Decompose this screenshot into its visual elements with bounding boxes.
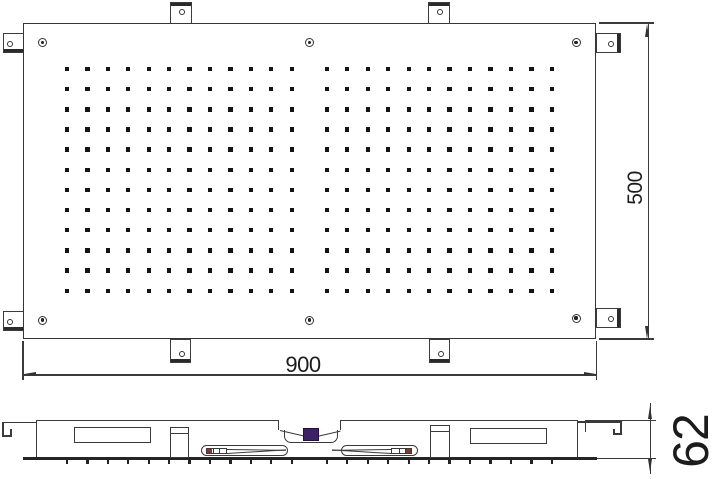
nozzle	[509, 289, 513, 293]
mounting-tab-right	[596, 33, 621, 53]
nozzle	[65, 188, 69, 192]
nozzle	[386, 289, 390, 293]
nozzle	[290, 268, 294, 272]
nozzle	[550, 289, 554, 293]
nozzle	[147, 188, 151, 192]
nozzle-tick	[86, 459, 88, 463]
notch-left-wall	[278, 420, 279, 430]
nozzle	[167, 147, 171, 151]
nozzle	[290, 127, 294, 131]
nozzle	[468, 248, 472, 252]
nozzle	[208, 208, 212, 212]
dimension-label-depth: 62	[674, 410, 708, 472]
nozzle	[447, 147, 451, 151]
nozzle	[468, 188, 472, 192]
nozzle	[488, 127, 492, 131]
nozzle	[249, 208, 253, 212]
nozzle	[345, 67, 349, 71]
nozzle	[187, 248, 191, 252]
nozzle	[228, 127, 232, 131]
nozzle-tick	[448, 459, 450, 463]
nozzle	[85, 147, 89, 151]
arrowhead-right-icon	[584, 372, 596, 376]
nozzle	[85, 248, 89, 252]
nozzle	[106, 188, 110, 192]
screw-hole-icon	[305, 316, 314, 325]
nozzle	[269, 127, 273, 131]
nozzle	[366, 208, 370, 212]
nozzle	[126, 168, 130, 172]
tab-hole-icon	[438, 351, 444, 357]
mounting-tab-right	[596, 308, 621, 328]
nozzle	[529, 289, 533, 293]
nozzle	[407, 289, 411, 293]
nozzle	[407, 127, 411, 131]
nozzle	[447, 67, 451, 71]
left-divider-block	[170, 427, 189, 459]
nozzle	[529, 228, 533, 232]
nozzle	[167, 248, 171, 252]
screw-hole-icon	[572, 38, 581, 47]
nozzle	[447, 107, 451, 111]
nozzle-tick	[127, 459, 129, 463]
nozzle	[325, 107, 329, 111]
nozzle	[427, 67, 431, 71]
nozzle	[106, 168, 110, 172]
nozzle	[345, 228, 349, 232]
nozzle	[290, 188, 294, 192]
nozzle	[407, 87, 411, 91]
nozzle	[269, 248, 273, 252]
nozzle	[290, 67, 294, 71]
nozzle	[345, 248, 349, 252]
nozzle	[147, 127, 151, 131]
nozzle	[126, 208, 130, 212]
nozzle	[269, 87, 273, 91]
nozzle	[126, 127, 130, 131]
nozzle	[325, 147, 329, 151]
nozzle	[468, 87, 472, 91]
nozzle	[85, 188, 89, 192]
nozzle	[325, 228, 329, 232]
nozzle-tick	[107, 459, 109, 463]
nozzle	[187, 188, 191, 192]
nozzle	[167, 268, 171, 272]
nozzle-tick	[551, 459, 553, 463]
nozzle-tick	[408, 459, 410, 463]
nozzle	[147, 248, 151, 252]
dimension-label-width: 900	[273, 352, 333, 378]
nozzle	[550, 147, 554, 151]
nozzle	[106, 107, 110, 111]
nozzle	[208, 168, 212, 172]
nozzle	[468, 289, 472, 293]
left-clip-line	[219, 448, 220, 454]
tab-shadow-edge	[4, 327, 23, 330]
tab-shadow-edge	[171, 3, 191, 6]
tab-shadow-edge	[4, 49, 23, 52]
nozzle	[106, 67, 110, 71]
nozzle	[366, 228, 370, 232]
nozzle	[488, 67, 492, 71]
nozzle	[290, 248, 294, 252]
nozzle	[85, 87, 89, 91]
nozzle	[85, 107, 89, 111]
nozzle	[147, 268, 151, 272]
nozzle	[65, 248, 69, 252]
right-bracket-curl	[613, 429, 615, 435]
nozzle	[290, 289, 294, 293]
nozzle	[106, 147, 110, 151]
nozzle-tick	[387, 459, 389, 463]
body-top-edge-right	[341, 420, 578, 421]
nozzle	[147, 289, 151, 293]
nozzle	[187, 228, 191, 232]
body-top-edge-left	[36, 420, 278, 421]
nozzle	[386, 228, 390, 232]
left-bracket-curl	[10, 429, 12, 437]
mounting-tab-left	[3, 311, 24, 331]
nozzle	[65, 228, 69, 232]
nozzle	[529, 87, 533, 91]
nozzle	[407, 188, 411, 192]
nozzle	[65, 208, 69, 212]
nozzle	[509, 87, 513, 91]
nozzle	[208, 228, 212, 232]
nozzle	[167, 67, 171, 71]
technical-drawing-canvas: 900 500	[0, 0, 726, 479]
nozzle	[249, 127, 253, 131]
arrowhead-up-icon	[645, 24, 649, 37]
nozzle	[366, 67, 370, 71]
nozzle-tick	[510, 459, 512, 463]
right-divider-block	[430, 425, 450, 458]
tab-hole-icon	[179, 9, 185, 15]
nozzle	[249, 228, 253, 232]
nozzle	[550, 268, 554, 272]
nozzle	[249, 87, 253, 91]
nozzle	[529, 188, 533, 192]
nozzle	[550, 67, 554, 71]
tab-hole-icon	[7, 41, 13, 47]
nozzle	[488, 268, 492, 272]
nozzle-tick	[291, 459, 293, 463]
arrowhead-down-icon	[645, 326, 649, 339]
nozzle	[290, 147, 294, 151]
nozzle	[290, 107, 294, 111]
nozzle	[468, 147, 472, 151]
nozzle	[447, 127, 451, 131]
nozzle	[106, 228, 110, 232]
nozzle-tick	[469, 459, 471, 463]
nozzle	[325, 127, 329, 131]
screw-hole-icon	[572, 314, 581, 323]
nozzle	[325, 248, 329, 252]
nozzle	[447, 87, 451, 91]
nozzle	[345, 87, 349, 91]
nozzle	[147, 87, 151, 91]
nozzle	[407, 147, 411, 151]
mounting-tab-bottom	[170, 339, 191, 363]
nozzle	[208, 107, 212, 111]
nozzle	[65, 147, 69, 151]
nozzle	[126, 147, 130, 151]
nozzle	[468, 168, 472, 172]
nozzle	[345, 208, 349, 212]
nozzle-tick	[530, 459, 532, 463]
nozzle	[550, 188, 554, 192]
nozzle	[529, 208, 533, 212]
nozzle	[228, 208, 232, 212]
nozzle	[167, 87, 171, 91]
nozzle	[386, 248, 390, 252]
nozzle	[550, 127, 554, 131]
nozzle	[269, 168, 273, 172]
nozzle	[366, 188, 370, 192]
nozzle	[366, 168, 370, 172]
right-divider-cap-line	[430, 431, 450, 432]
nozzle	[407, 67, 411, 71]
nozzle	[126, 107, 130, 111]
nozzle	[488, 289, 492, 293]
nozzle	[106, 127, 110, 131]
nozzle	[208, 268, 212, 272]
nozzle	[509, 127, 513, 131]
nozzle	[167, 188, 171, 192]
nozzle-tick	[168, 459, 170, 463]
nozzle	[228, 228, 232, 232]
nozzle	[386, 188, 390, 192]
nozzle	[529, 67, 533, 71]
nozzle	[147, 168, 151, 172]
nozzle-tick	[229, 459, 231, 463]
nozzle	[249, 168, 253, 172]
nozzle	[366, 268, 370, 272]
nozzle	[269, 268, 273, 272]
nozzle	[509, 168, 513, 172]
nozzle	[269, 188, 273, 192]
nozzle	[126, 67, 130, 71]
nozzle-tick	[326, 459, 328, 463]
nozzle	[187, 127, 191, 131]
nozzle	[529, 268, 533, 272]
notch-right-wall	[340, 420, 341, 430]
nozzle-tick	[209, 459, 211, 463]
mounting-tab-left	[3, 33, 24, 53]
nozzle	[85, 268, 89, 272]
nozzle	[550, 107, 554, 111]
nozzle	[208, 67, 212, 71]
left-clip-accent	[207, 449, 212, 453]
arrowhead-down-icon	[648, 459, 652, 472]
nozzle	[488, 107, 492, 111]
nozzle	[106, 248, 110, 252]
right-internal-chamber	[470, 428, 547, 444]
nozzle	[447, 268, 451, 272]
nozzle	[529, 147, 533, 151]
nozzle	[407, 268, 411, 272]
nozzle-tick	[489, 459, 491, 463]
left-clip-line	[213, 448, 214, 454]
nozzle	[407, 228, 411, 232]
nozzle	[550, 248, 554, 252]
nozzle	[167, 289, 171, 293]
nozzle	[427, 289, 431, 293]
nozzle	[468, 127, 472, 131]
nozzle	[106, 87, 110, 91]
nozzle	[345, 168, 349, 172]
nozzle	[529, 248, 533, 252]
nozzle	[529, 107, 533, 111]
nozzle	[249, 107, 253, 111]
nozzle	[65, 127, 69, 131]
nozzle	[65, 107, 69, 111]
nozzle	[187, 67, 191, 71]
tab-hole-icon	[7, 319, 13, 325]
nozzle	[386, 147, 390, 151]
screw-hole-icon	[38, 316, 47, 325]
extension-line	[599, 338, 654, 339]
nozzle	[366, 147, 370, 151]
nozzle	[325, 289, 329, 293]
nozzle	[126, 248, 130, 252]
nozzle	[488, 87, 492, 91]
nozzle	[187, 147, 191, 151]
nozzle	[208, 188, 212, 192]
nozzle	[228, 147, 232, 151]
tab-hole-icon	[608, 316, 614, 322]
left-bracket-top	[2, 422, 36, 424]
water-inlet-valve	[303, 428, 319, 442]
nozzle	[529, 168, 533, 172]
nozzle	[550, 168, 554, 172]
nozzle	[447, 168, 451, 172]
nozzle	[187, 87, 191, 91]
nozzle	[208, 127, 212, 131]
nozzle	[386, 268, 390, 272]
nozzle	[269, 289, 273, 293]
nozzle	[167, 127, 171, 131]
nozzle	[325, 188, 329, 192]
mounting-tab-top	[170, 2, 192, 24]
nozzle	[488, 168, 492, 172]
nozzle-tick	[346, 459, 348, 463]
nozzle	[269, 147, 273, 151]
nozzle	[550, 87, 554, 91]
tab-hole-icon	[608, 41, 614, 47]
nozzle	[147, 147, 151, 151]
nozzle	[290, 168, 294, 172]
nozzle	[126, 188, 130, 192]
nozzle	[85, 127, 89, 131]
nozzle	[106, 289, 110, 293]
nozzle	[126, 87, 130, 91]
nozzle	[65, 268, 69, 272]
nozzle-tick	[270, 459, 272, 463]
nozzle	[509, 188, 513, 192]
nozzle	[85, 168, 89, 172]
nozzle	[85, 289, 89, 293]
nozzle	[65, 87, 69, 91]
right-clip-accent	[406, 449, 411, 453]
nozzle	[468, 228, 472, 232]
nozzle	[325, 268, 329, 272]
nozzle	[427, 107, 431, 111]
nozzle	[427, 127, 431, 131]
nozzle	[529, 127, 533, 131]
nozzle	[386, 67, 390, 71]
nozzle	[228, 248, 232, 252]
nozzle	[208, 87, 212, 91]
tab-hole-icon	[437, 9, 443, 15]
dimension-label-height: 500	[624, 158, 648, 218]
nozzle	[228, 87, 232, 91]
mounting-tab-top	[428, 2, 450, 24]
nozzle	[509, 268, 513, 272]
nozzle	[386, 87, 390, 91]
nozzle	[249, 268, 253, 272]
nozzle	[427, 248, 431, 252]
nozzle	[345, 188, 349, 192]
tab-shadow-edge	[429, 3, 449, 6]
nozzle	[147, 107, 151, 111]
nozzle	[366, 127, 370, 131]
left-internal-chamber	[74, 427, 151, 443]
nozzle	[126, 289, 130, 293]
tab-shadow-edge	[617, 309, 620, 327]
nozzle	[208, 289, 212, 293]
nozzle	[269, 228, 273, 232]
nozzle	[187, 168, 191, 172]
nozzle	[427, 208, 431, 212]
nozzle-tick	[188, 459, 190, 463]
nozzle	[366, 107, 370, 111]
nozzle	[85, 228, 89, 232]
nozzle	[427, 87, 431, 91]
nozzle	[488, 228, 492, 232]
nozzle	[147, 228, 151, 232]
nozzle	[187, 289, 191, 293]
nozzle	[509, 208, 513, 212]
nozzle	[550, 228, 554, 232]
nozzle	[386, 127, 390, 131]
right-clip-line	[399, 448, 400, 454]
nozzle	[228, 268, 232, 272]
nozzle	[208, 248, 212, 252]
nozzle	[386, 107, 390, 111]
nozzle	[228, 168, 232, 172]
nozzle-tick	[367, 459, 369, 463]
nozzle	[345, 107, 349, 111]
nozzle	[427, 147, 431, 151]
body-left-edge	[36, 420, 37, 458]
nozzle	[407, 168, 411, 172]
nozzle	[447, 188, 451, 192]
nozzle	[249, 147, 253, 151]
nozzle	[447, 208, 451, 212]
nozzle	[366, 87, 370, 91]
nozzle	[249, 188, 253, 192]
nozzle	[325, 87, 329, 91]
nozzle	[488, 147, 492, 151]
nozzle	[147, 67, 151, 71]
nozzle	[509, 228, 513, 232]
nozzle	[325, 208, 329, 212]
nozzle	[468, 208, 472, 212]
nozzle	[366, 248, 370, 252]
nozzle	[407, 208, 411, 212]
nozzle	[85, 208, 89, 212]
